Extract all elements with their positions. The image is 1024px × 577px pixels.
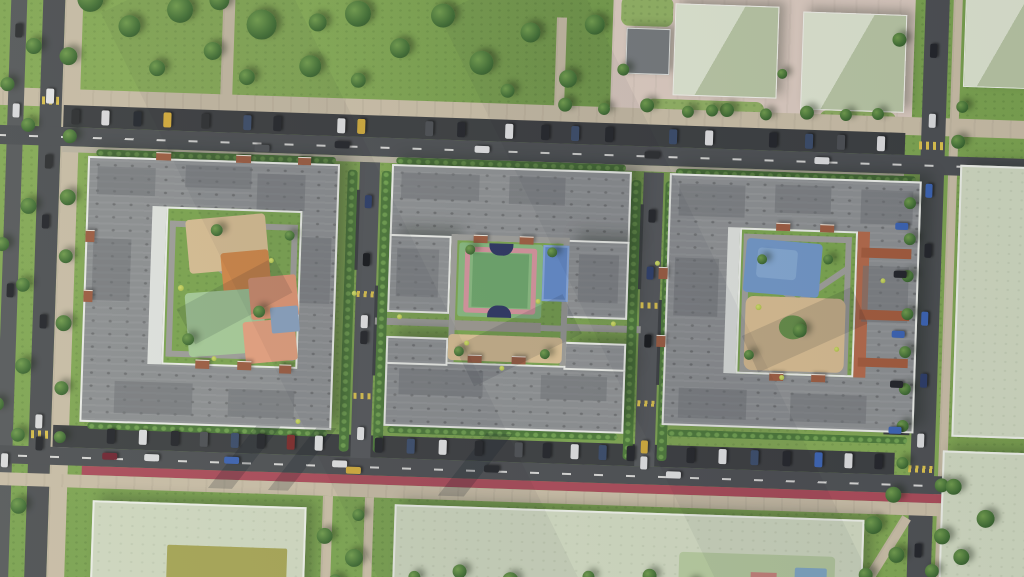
parked-car bbox=[644, 334, 651, 347]
parked-car bbox=[363, 253, 370, 266]
parked-car bbox=[438, 440, 446, 455]
driving-car bbox=[644, 151, 659, 158]
parked-car bbox=[877, 136, 885, 151]
parked-car bbox=[598, 445, 606, 460]
parked-car bbox=[273, 116, 281, 131]
driving-car bbox=[335, 141, 350, 148]
parked-car bbox=[894, 271, 907, 278]
parked-car bbox=[133, 111, 141, 126]
driving-car bbox=[357, 427, 364, 440]
parked-car bbox=[337, 118, 345, 133]
parked-car bbox=[571, 126, 579, 141]
parked-car bbox=[570, 444, 578, 459]
driving-car bbox=[666, 471, 681, 478]
parked-car bbox=[542, 443, 550, 458]
parked-car bbox=[718, 449, 726, 464]
driving-car bbox=[929, 114, 936, 128]
driving-car bbox=[361, 315, 368, 328]
parked-car bbox=[769, 132, 777, 147]
driving-car bbox=[640, 456, 647, 469]
parked-car bbox=[874, 454, 882, 469]
parked-car bbox=[457, 122, 465, 137]
driving-car bbox=[920, 374, 927, 388]
parked-car bbox=[505, 124, 513, 139]
driving-car bbox=[924, 244, 931, 258]
driving-car bbox=[474, 146, 489, 153]
driving-car bbox=[332, 460, 347, 467]
parked-car bbox=[805, 134, 813, 149]
scene-world bbox=[0, 0, 1024, 577]
parked-car bbox=[71, 109, 79, 124]
driving-car bbox=[224, 457, 239, 464]
driving-car bbox=[35, 436, 42, 450]
driving-car bbox=[914, 543, 921, 557]
parked-car bbox=[15, 23, 22, 37]
driving-car bbox=[814, 157, 829, 164]
parked-car bbox=[201, 114, 209, 129]
parked-car bbox=[357, 119, 365, 134]
parked-car bbox=[892, 331, 905, 338]
layer-vehicles bbox=[0, 0, 1024, 577]
parked-car bbox=[605, 127, 613, 142]
driving-car bbox=[917, 434, 924, 448]
parked-car bbox=[243, 115, 251, 130]
parked-car bbox=[406, 439, 414, 454]
parked-car bbox=[101, 110, 109, 125]
parked-car bbox=[888, 427, 901, 434]
parked-car bbox=[257, 434, 265, 449]
parked-car bbox=[12, 103, 19, 117]
parked-car bbox=[890, 381, 903, 388]
parked-car bbox=[782, 451, 790, 466]
driving-car bbox=[925, 184, 932, 198]
aerial-render-residential-complex bbox=[0, 0, 1024, 577]
parked-car bbox=[287, 435, 295, 450]
driving-car bbox=[35, 414, 42, 428]
parked-car bbox=[315, 436, 323, 451]
parked-car bbox=[514, 442, 522, 457]
parked-car bbox=[541, 125, 549, 140]
parked-car bbox=[705, 130, 713, 145]
driving-car bbox=[921, 312, 928, 326]
driving-car bbox=[346, 467, 361, 474]
driving-car bbox=[42, 214, 49, 228]
parked-car bbox=[163, 112, 171, 127]
parked-car bbox=[837, 135, 845, 150]
driving-car bbox=[254, 144, 269, 151]
parked-car bbox=[648, 209, 655, 222]
parked-car bbox=[474, 441, 482, 456]
parked-car bbox=[895, 223, 908, 230]
parked-car bbox=[1, 453, 8, 467]
parked-car bbox=[365, 195, 372, 208]
driving-car bbox=[930, 44, 937, 58]
parked-car bbox=[686, 448, 694, 463]
driving-car bbox=[45, 154, 52, 168]
parked-car bbox=[669, 129, 677, 144]
parked-car bbox=[626, 446, 634, 461]
parked-car bbox=[750, 450, 758, 465]
driving-car bbox=[144, 454, 159, 461]
parked-car bbox=[139, 430, 147, 445]
parked-car bbox=[425, 121, 433, 136]
parked-car bbox=[231, 433, 239, 448]
driving-car bbox=[46, 88, 54, 103]
driving-car bbox=[102, 453, 117, 460]
driving-car bbox=[641, 440, 648, 453]
parked-car bbox=[814, 452, 822, 467]
parked-car bbox=[6, 283, 13, 297]
parked-car bbox=[107, 429, 115, 444]
parked-car bbox=[171, 431, 179, 446]
parked-car bbox=[374, 438, 382, 453]
driving-car bbox=[360, 331, 367, 344]
parked-car bbox=[844, 453, 852, 468]
driving-car bbox=[484, 465, 499, 472]
parked-car bbox=[646, 266, 653, 279]
parked-car bbox=[200, 432, 208, 447]
driving-car bbox=[39, 314, 46, 328]
